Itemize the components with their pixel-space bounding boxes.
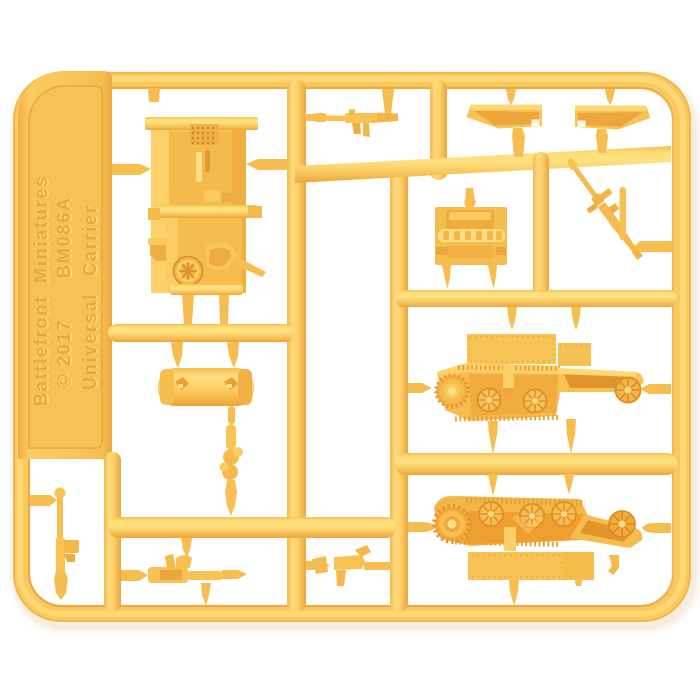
svg-text:Battlefront: Battlefront — [31, 295, 51, 406]
svg-text:Carrier: Carrier — [80, 204, 100, 276]
svg-text:Miniatures: Miniatures — [31, 175, 51, 283]
svg-text:© 2017: © 2017 — [54, 319, 74, 388]
svg-text:Universal: Universal — [80, 293, 100, 390]
svg-text:BM086A: BM086A — [54, 196, 74, 278]
